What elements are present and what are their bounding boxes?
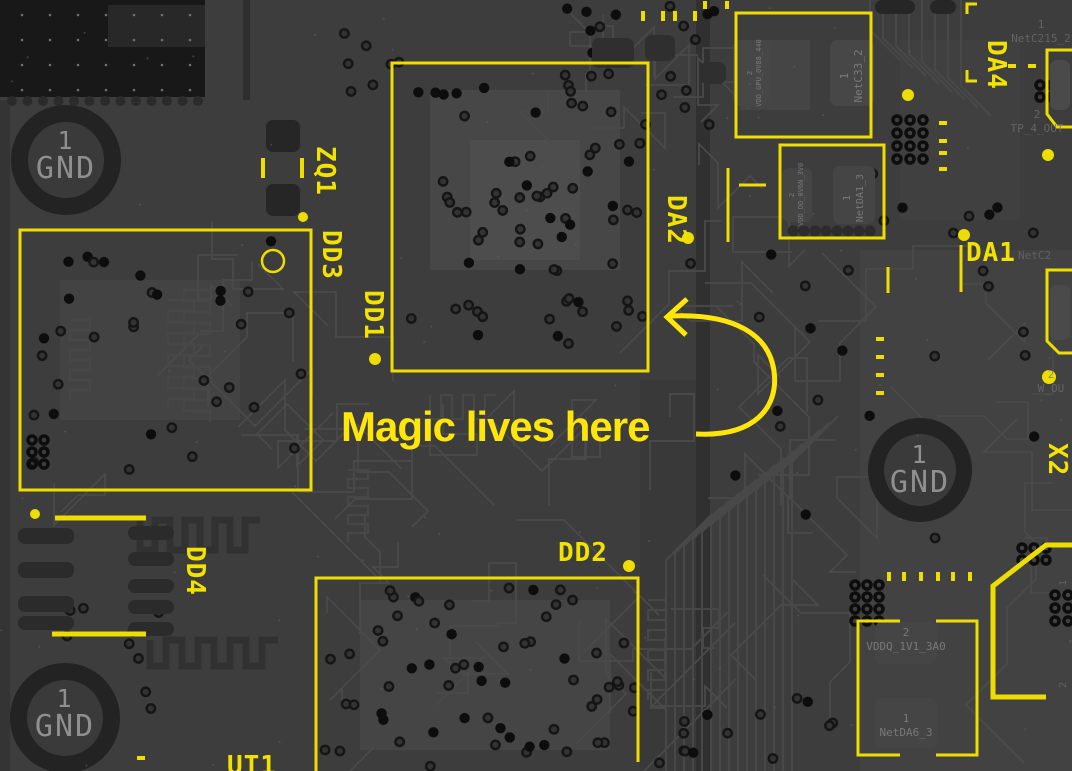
net-label-vddq: 2VDDQ_1V1_3A0 — [854, 626, 958, 654]
net-label-netc2: NetC2 — [1018, 249, 1051, 263]
refdes-label-dd3: DD3 — [320, 230, 342, 280]
courtyard-dd1 — [392, 63, 648, 371]
courtyard-dd2 — [316, 578, 638, 771]
refdes-label-dd1: DD1 — [362, 290, 384, 340]
net-label-netc215: 1NetC215_2 — [996, 18, 1072, 46]
corner-bracket — [967, 4, 977, 14]
gnd-pad-bottom-left: 1 GND — [5, 686, 125, 742]
net-label-netda1: 1NetDA1_3 — [842, 170, 867, 226]
net-label-wou: 2W_OU — [1010, 368, 1072, 396]
refdes-label-dd2: DD2 — [558, 542, 608, 564]
pad-net-name: GND — [6, 154, 126, 184]
net-label-netc33: 1NetC33_2 — [838, 45, 866, 107]
pad-net-name: GND — [860, 468, 980, 498]
refdes-label-dd4: DD4 — [184, 546, 206, 596]
refdes-label-da2: DA2 — [665, 195, 687, 245]
refdes-label-da4: DA4 — [985, 40, 1007, 90]
refdes-label-da1: DA1 — [966, 242, 1016, 264]
dd3-pin1-circle — [262, 250, 284, 272]
refdes-label-x2: X2 — [1046, 443, 1068, 476]
silkscreen-layer — [0, 0, 1072, 771]
magic-annotation: Magic lives here — [341, 404, 650, 450]
pcb-board-view: ZQ1 DD3 DD1 DD2 DD4 UT1 DA1 DA2 DA4 X2 1… — [0, 0, 1072, 771]
corner-bracket — [967, 70, 977, 81]
net-label-edge-1: 1 — [1058, 568, 1071, 598]
refdes-label-zq1: ZQ1 — [314, 146, 336, 196]
net-label-vdd-dd: 2VDD_DD_0V6N_3V0 — [788, 164, 806, 226]
pad-net-name: GND — [5, 712, 125, 742]
curved-arrow-icon — [667, 299, 775, 434]
gnd-pad-right: 1 GND — [860, 442, 980, 498]
refdes-label-ut1: UT1 — [227, 755, 277, 771]
courtyard-right-mid — [1047, 270, 1072, 353]
net-label-edge-2: 2 — [1058, 670, 1071, 700]
net-label-netda6: 1NetDA6_3 — [854, 712, 958, 740]
net-label-vdd-gpu: 2VDD_GPU_0V88_440 — [746, 39, 764, 107]
gnd-pad-top-left: 1 GND — [6, 128, 126, 184]
net-label-tp4out: 2TP_4_OUT — [992, 108, 1072, 136]
